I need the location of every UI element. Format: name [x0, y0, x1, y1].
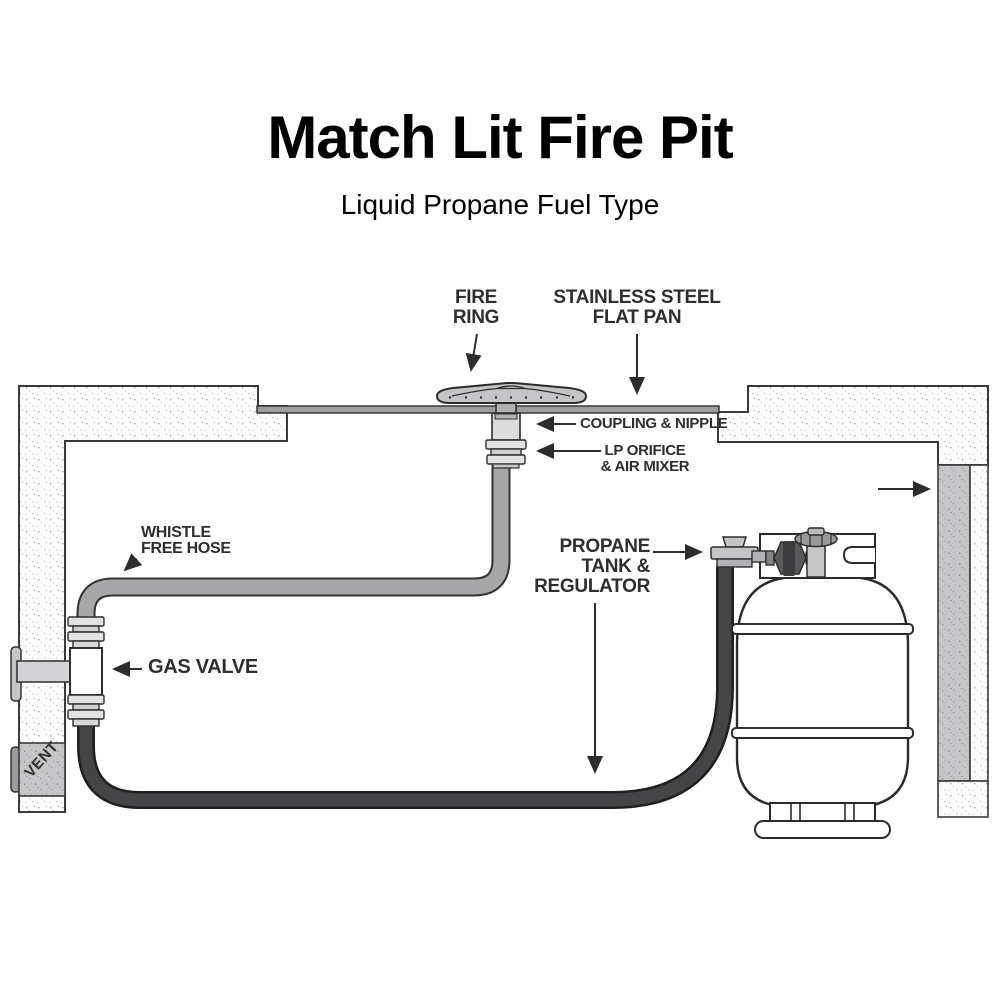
flat-pan-shape: [257, 406, 719, 413]
page: Match Lit Fire Pit Liquid Propane Fuel T…: [0, 0, 1000, 1000]
tank-foot-ring: [755, 803, 890, 838]
coupling-nipple-shape: [492, 413, 520, 440]
whistle-free-hose-label: WHISTLE FREE HOSE: [141, 525, 231, 557]
gas-valve-label: GAS VALVE: [148, 657, 258, 678]
propane-tank-shape: [732, 534, 913, 838]
black-hose-shape: [86, 566, 725, 800]
propane-tank-label: PROPANE TANK & REGULATOR: [518, 537, 650, 597]
lp-orifice-label: LP ORIFICE & AIR MIXER: [570, 443, 720, 475]
fire-ring-arrow: [471, 334, 477, 370]
diagram-canvas: [0, 0, 1000, 1000]
right-wall-inner-panel: [938, 465, 970, 781]
whistle-hose-arrow: [125, 559, 137, 570]
coupling-nipple-label: COUPLING & NIPPLE: [580, 416, 727, 432]
flat-pan-label: STAINLESS STEEL FLAT PAN: [527, 288, 747, 328]
fire-ring-label: FIRE RING: [416, 288, 536, 328]
lp-orifice-shape: [486, 440, 526, 468]
